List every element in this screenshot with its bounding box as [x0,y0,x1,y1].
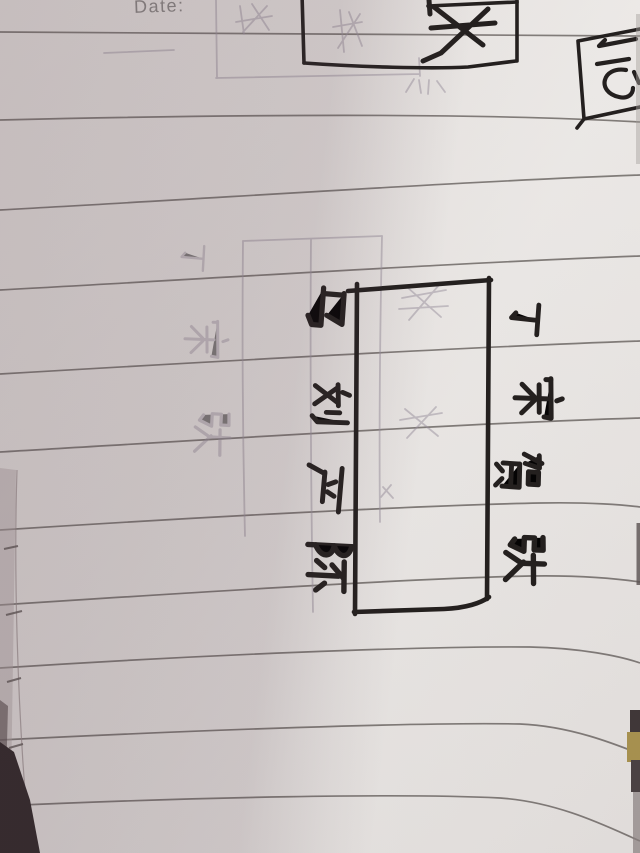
main-box [348,278,491,614]
ruled-line [0,576,640,605]
top-partial-character [423,0,495,61]
ghost-table-line [311,239,313,612]
ruled-line [0,341,640,374]
surname-ding: 丁 [510,302,540,334]
ghost-character [181,244,205,271]
ruled-lines [0,32,640,841]
main-box-bottom [354,597,489,612]
ruled-line [0,175,640,210]
ghost-character [184,320,228,357]
surname-yan: 严 [304,464,344,512]
ruled-line [0,115,640,122]
corner-box-character [605,70,639,98]
ghost-pencil-dash [104,50,174,53]
right-edge-shade [633,792,640,853]
notebook-page-drawing: 丁 宋 贺 张 马 刘 严 陈 [0,0,640,853]
partial-character-strokes [423,0,495,61]
corner-box-character [597,39,636,64]
ruled-line [0,647,640,668]
ghost-characters [181,244,232,456]
main-box-left [355,284,357,614]
notebook-photo: 丁 宋 贺 张 马 刘 严 陈 [0,0,640,853]
top-box-outline [304,61,516,68]
ruled-line [0,503,640,530]
top-box-outline [302,0,304,63]
main-box-top [348,280,491,291]
ruled-line [0,724,640,754]
ghost-scribble [333,10,362,52]
ghost-table-line [243,241,245,536]
dark-corner [0,742,40,853]
ruled-line [0,796,640,841]
main-box-right [487,278,489,599]
ghost-scribble [381,485,393,498]
surname-liu: 刘 [312,384,350,423]
ghost-date-box-edge [216,0,217,78]
right-edge-mark [637,523,640,585]
ghost-scribble [236,4,272,34]
ghost-character [194,412,231,455]
right-edge-yellow-notch [627,732,640,762]
ruled-line [0,256,640,290]
ghost-table-line [380,236,382,522]
right-edge-dark-notch [631,760,640,792]
ghost-scribble [406,79,445,94]
right-edge-dark-notch [630,710,640,734]
ghost-table-top-edge [243,236,382,241]
ruled-line [0,32,640,36]
ghost-scribble [399,285,448,320]
right-edge-strip [636,14,640,164]
corner-box [577,29,640,128]
top-box-outline [428,2,517,6]
date-label: Date: [134,0,185,18]
surname-he: 贺 [495,452,543,489]
surname-ma: 马 [307,287,345,327]
ghost-scribble [400,407,442,438]
surname-song: 宋 [514,377,563,418]
